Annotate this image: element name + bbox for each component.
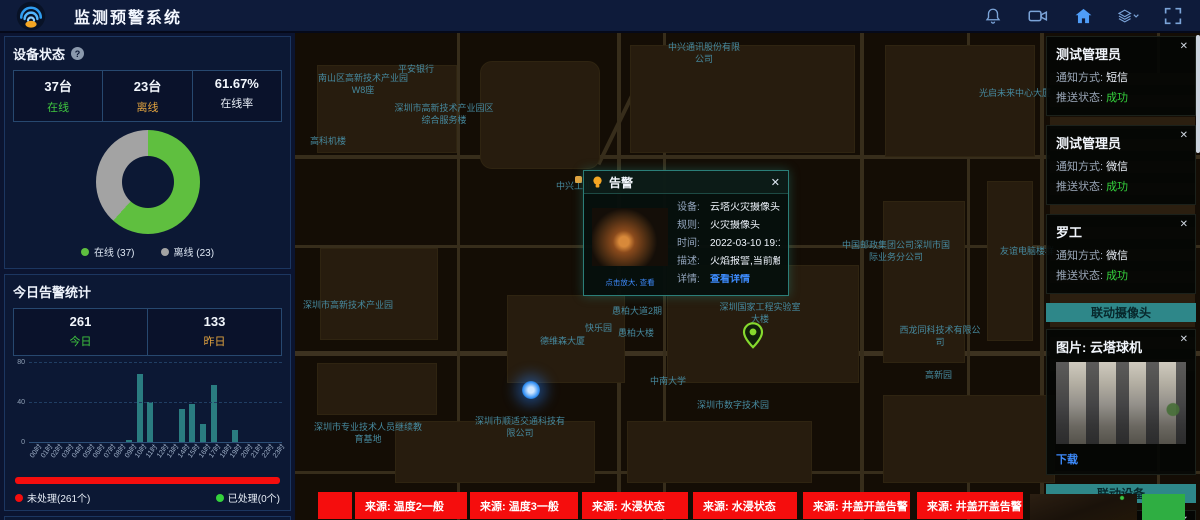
bar-slot — [187, 362, 198, 442]
bar-slot — [177, 362, 188, 442]
notification-recipient: 测试管理员 — [1056, 133, 1186, 152]
card-field: 通知方式:短信 — [1056, 69, 1186, 85]
bar-slot — [29, 362, 40, 442]
bar-slot — [156, 362, 167, 442]
donut-chart — [96, 130, 200, 234]
map-label: 中国邮政集团公司深圳市国际业务分公司 — [840, 240, 952, 263]
popup-field: 规则:火灾摄像头 — [677, 220, 780, 231]
alarm-bulb-icon — [592, 176, 603, 189]
stat-cell: 61.67%在线率 — [193, 71, 281, 121]
stat-label: 在线 — [16, 99, 100, 115]
alert-source-text: 来源: 井盖开盖告警 — [813, 498, 908, 514]
right-sidebar: 测试管理员通知方式:短信推送状态:成功测试管理员通知方式:微信推送状态:成功罗工… — [1046, 36, 1196, 520]
stat-label: 昨日 — [150, 333, 279, 349]
bar-slot — [229, 362, 240, 442]
stat-value: 133 — [150, 314, 279, 329]
popup-field-value: 云塔火灾摄像头202 — [710, 202, 780, 213]
bar-slot — [82, 362, 93, 442]
card-field-label: 通知方式: — [1056, 72, 1103, 84]
map-label: 深圳市高新技术产业园 — [300, 300, 396, 312]
green-thumbnail[interactable] — [1142, 494, 1185, 520]
today-alerts-title: 今日告警统计 — [13, 282, 91, 301]
map-building — [627, 421, 812, 483]
card-field-value: 成功 — [1106, 181, 1128, 193]
bar-slot — [40, 362, 51, 442]
bar-slot — [272, 362, 283, 442]
alert-source-text: 来源: 井盖开盖告警 — [927, 498, 1022, 514]
legend-label: 在线 (37) — [94, 244, 135, 259]
popup-field: 时间:2022-03-10 19:13:07 — [677, 238, 780, 249]
bottom-alert-bar: 来源: 温度2一般来源: 温度3一般来源: 水浸状态来源: 水浸状态来源: 井盖… — [295, 488, 1200, 520]
bar-slot — [50, 362, 61, 442]
bar — [179, 409, 185, 442]
card-field-value: 成功 — [1106, 92, 1128, 104]
bar — [147, 402, 153, 442]
popup-field-value: 火灾摄像头 — [710, 220, 760, 231]
card-field-label: 通知方式: — [1056, 161, 1103, 173]
bar-slot — [240, 362, 251, 442]
app-logo-icon — [16, 1, 46, 31]
bar — [137, 374, 143, 442]
legend-dot-icon — [161, 248, 169, 256]
processed-label: 已处理(0个) — [228, 490, 280, 505]
alert-source-item[interactable]: 来源: 井盖开盖告警 — [917, 492, 1023, 519]
alert-source-text: 来源: 水浸状态 — [703, 498, 776, 514]
bar-slot — [166, 362, 177, 442]
bar-slot — [219, 362, 230, 442]
linked-camera-card: 图片: 云塔球机 下载 — [1046, 329, 1196, 475]
stat-value: 61.67% — [195, 76, 279, 91]
map-label: 深圳市顺适交通科技有限公司 — [472, 416, 568, 439]
map-building — [883, 395, 1055, 483]
card-field: 推送状态:成功 — [1056, 178, 1186, 194]
y-tick-label: 0 — [21, 439, 25, 446]
map-road — [860, 33, 864, 520]
bell-icon[interactable] — [982, 6, 1004, 26]
view-detail-link[interactable]: 查看详情 — [710, 274, 750, 285]
x-axis-ticks: 00时01时02时03时04时05时06时07时08时09时10时11时12时1… — [29, 445, 282, 467]
unprocessed-progress-bar — [15, 477, 280, 484]
alert-popup-title: 告警 — [609, 174, 633, 191]
red-dot-icon — [15, 494, 23, 502]
map-building — [630, 45, 855, 153]
stat-label: 离线 — [105, 99, 189, 115]
month-alerts-panel: 本月告警统计 7631146 — [4, 516, 291, 520]
map-building — [320, 248, 438, 340]
bar-series — [29, 362, 282, 443]
notification-card[interactable]: 测试管理员通知方式:微信推送状态:成功 — [1046, 125, 1196, 205]
help-icon[interactable]: ? — [71, 47, 84, 60]
popup-field-value: 2022-03-10 19:13:07 — [710, 238, 780, 249]
card-field-label: 推送状态: — [1056, 92, 1103, 104]
card-field-value: 微信 — [1106, 250, 1128, 262]
close-icon[interactable] — [1180, 41, 1188, 52]
alert-image-column: 点击放大, 查看 — [592, 199, 668, 292]
popup-field: 描述:火焰报警,当前触发值为... — [677, 256, 780, 267]
stat-label: 今日 — [16, 333, 145, 349]
device-status-title: 设备状态 — [13, 44, 65, 63]
bar — [189, 404, 195, 442]
unprocessed-legend-item: 未处理(261个) — [15, 490, 90, 505]
home-icon[interactable] — [1072, 6, 1094, 26]
popup-field-label: 设备: — [677, 202, 710, 213]
panel-title: 设备状态 ? — [13, 42, 282, 70]
camera-card-title: 图片: 云塔球机 — [1056, 337, 1186, 356]
card-field: 通知方式:微信 — [1056, 158, 1186, 174]
popup-field-label: 时间: — [677, 238, 710, 249]
close-icon[interactable] — [1180, 130, 1188, 141]
popup-field-label: 描述: — [677, 256, 710, 267]
linked-camera-header: 联动摄像头 — [1046, 303, 1196, 322]
map-label: 西龙同科技术有限公司 — [898, 325, 982, 348]
map-label: 快乐园 — [585, 323, 612, 335]
alert-source-item[interactable]: 来源: 温度2一般 — [355, 492, 467, 519]
video-camera-icon[interactable] — [1027, 6, 1049, 26]
device-location-marker[interactable] — [522, 381, 540, 399]
bar-slot — [208, 362, 219, 442]
card-field: 推送状态:成功 — [1056, 267, 1186, 283]
card-field: 推送状态:成功 — [1056, 89, 1186, 105]
alert-source-text: 来源: 温度3一般 — [480, 498, 559, 514]
stat-label: 在线率 — [195, 95, 279, 111]
notification-list: 测试管理员通知方式:短信推送状态:成功测试管理员通知方式:微信推送状态:成功罗工… — [1046, 36, 1196, 294]
card-field-value: 短信 — [1106, 72, 1128, 84]
stat-value: 23台 — [105, 76, 189, 95]
map-label: 高科机楼 — [310, 136, 346, 148]
map-building — [480, 61, 600, 169]
y-tick-label: 80 — [17, 359, 25, 366]
alert-field-list: 设备:云塔火灾摄像头202规则:火灾摄像头时间:2022-03-10 19:13… — [677, 199, 780, 292]
popup-field-value: 火焰报警,当前触发值为... — [710, 256, 780, 267]
map-label: 愚柏大道2期 — [612, 306, 662, 318]
card-field: 通知方式:微信 — [1056, 247, 1186, 263]
close-icon[interactable] — [1180, 334, 1188, 345]
card-field-value: 微信 — [1106, 161, 1128, 173]
bar-slot — [113, 362, 124, 442]
bar — [126, 440, 132, 442]
processing-legend: 未处理(261个) 已处理(0个) — [13, 490, 282, 505]
legend-label: 离线 (23) — [174, 244, 215, 259]
alert-source-item[interactable] — [318, 492, 352, 519]
panel-title: 今日告警统计 — [13, 280, 282, 308]
alert-source-item[interactable]: 来源: 温度3一般 — [470, 492, 578, 519]
camera-thumbnail[interactable] — [1030, 494, 1137, 520]
top-header: 监测预警系统 — [0, 0, 1200, 33]
map-label: 深圳市数字技术园 — [697, 400, 769, 412]
map-building — [317, 363, 437, 415]
bar-slot — [198, 362, 209, 442]
green-dot-icon — [216, 494, 224, 502]
download-link[interactable]: 下载 — [1056, 454, 1078, 466]
app-root: 监测预警系统 — [0, 0, 1200, 520]
alert-popup-header: 告警 — [584, 171, 788, 194]
poi-marker-icon[interactable] — [575, 176, 582, 183]
device-status-stats: 37台在线23台离线61.67%在线率 — [13, 70, 282, 122]
close-icon[interactable] — [771, 176, 780, 189]
fullscreen-icon[interactable] — [1162, 6, 1184, 26]
chevron-down-icon — [1134, 14, 1139, 16]
bar-slot — [61, 362, 72, 442]
close-icon[interactable] — [1180, 219, 1188, 230]
map-label: 深圳市高新技术产业园区综合服务楼 — [392, 103, 496, 126]
today-alerts-panel: 今日告警统计 261今日133昨日 04080 00时01时02时03时04时0… — [4, 274, 291, 511]
notification-card[interactable]: 测试管理员通知方式:短信推送状态:成功 — [1046, 36, 1196, 116]
legend-item: 离线 (23) — [161, 244, 215, 259]
stat-value: 261 — [16, 314, 145, 329]
bar-slot — [145, 362, 156, 442]
map-label: 愚柏大楼 — [618, 328, 654, 340]
notification-card[interactable]: 罗工通知方式:微信推送状态:成功 — [1046, 214, 1196, 294]
stat-cell: 23台离线 — [103, 71, 192, 121]
device-status-panel: 设备状态 ? 37台在线23台离线61.67%在线率 在线 (37)离线 (23… — [4, 36, 291, 269]
card-field-label: 通知方式: — [1056, 250, 1103, 262]
stat-cell: 261今日 — [14, 309, 148, 355]
y-tick-label: 40 — [17, 399, 25, 406]
y-axis-ticks: 04080 — [13, 362, 27, 442]
stat-cell: 37台在线 — [14, 71, 103, 121]
notification-recipient: 罗工 — [1056, 222, 1186, 241]
popup-field-label: 详情: — [677, 274, 710, 285]
bar-slot — [71, 362, 82, 442]
chart-plot-area: 04080 — [29, 362, 282, 442]
map-label: 中兴通讯股份有限公司 — [668, 42, 740, 65]
location-pin-icon[interactable] — [742, 322, 764, 349]
card-field-label: 推送状态: — [1056, 181, 1103, 193]
popup-field: 详情:查看详情 — [677, 274, 780, 285]
bar — [211, 385, 217, 442]
map-label: 南山区高新技术产业园W8座 — [315, 73, 411, 96]
donut-hole — [122, 156, 174, 208]
card-field-label: 推送状态: — [1056, 270, 1103, 282]
map-label: 中南大学 — [650, 376, 686, 388]
app-title: 监测预警系统 — [74, 4, 182, 28]
alert-source-item[interactable]: 来源: 水浸状态 — [693, 492, 797, 519]
popup-field: 设备:云塔火灾摄像头202 — [677, 202, 780, 213]
legend-item: 在线 (37) — [81, 244, 135, 259]
camera-snapshot-image[interactable] — [1056, 362, 1186, 444]
bar-slot — [92, 362, 103, 442]
stat-value: 37台 — [16, 76, 100, 95]
bar — [200, 424, 206, 442]
alert-source-text: 来源: 温度2一般 — [365, 498, 444, 514]
map-label: 深圳市专业技术人员继续教育基地 — [312, 422, 424, 445]
bar-slot — [103, 362, 114, 442]
bar — [232, 430, 238, 442]
layers-icon[interactable] — [1117, 6, 1139, 26]
alert-popup-body: 点击放大, 查看 设备:云塔火灾摄像头202规则:火灾摄像头时间:2022-03… — [584, 194, 788, 297]
bar-slot — [250, 362, 261, 442]
popup-field-label: 规则: — [677, 220, 710, 231]
alert-image-caption[interactable]: 点击放大, 查看 — [605, 277, 654, 288]
unprocessed-label: 未处理(261个) — [27, 490, 90, 505]
bar-slot — [261, 362, 272, 442]
today-alerts-stats: 261今日133昨日 — [13, 308, 282, 356]
left-sidebar: 设备状态 ? 37台在线23台离线61.67%在线率 在线 (37)离线 (23… — [0, 33, 295, 520]
map-building — [885, 45, 1035, 157]
map-building — [987, 181, 1033, 341]
donut-legend: 在线 (37)离线 (23) — [81, 244, 214, 259]
legend-dot-icon — [81, 248, 89, 256]
alert-source-item[interactable]: 来源: 水浸状态 — [582, 492, 688, 519]
processed-legend-item: 已处理(0个) — [216, 490, 280, 505]
map-label: 高新园 — [925, 370, 952, 382]
alert-popup: 告警 点击放大, 查看 设备:云塔火灾摄像头202规则:火灾摄像头时间:2022… — [583, 170, 789, 296]
bar-slot — [134, 362, 145, 442]
alert-source-text: 来源: 水浸状态 — [592, 498, 665, 514]
device-status-chart: 在线 (37)离线 (23) — [13, 122, 282, 263]
scrollbar-thumb[interactable] — [1196, 35, 1200, 153]
hourly-alert-chart: 04080 00时01时02时03时04时05时06时07时08时09时10时1… — [13, 362, 282, 467]
map-label: 德维森大厦 — [540, 336, 585, 348]
notification-recipient: 测试管理员 — [1056, 44, 1186, 63]
bar-slot — [124, 362, 135, 442]
stat-cell: 133昨日 — [148, 309, 281, 355]
alert-source-item[interactable]: 来源: 井盖开盖告警 — [803, 492, 910, 519]
header-icon-group — [982, 6, 1184, 26]
alert-snapshot-image[interactable] — [592, 208, 668, 266]
card-field-value: 成功 — [1106, 270, 1128, 282]
